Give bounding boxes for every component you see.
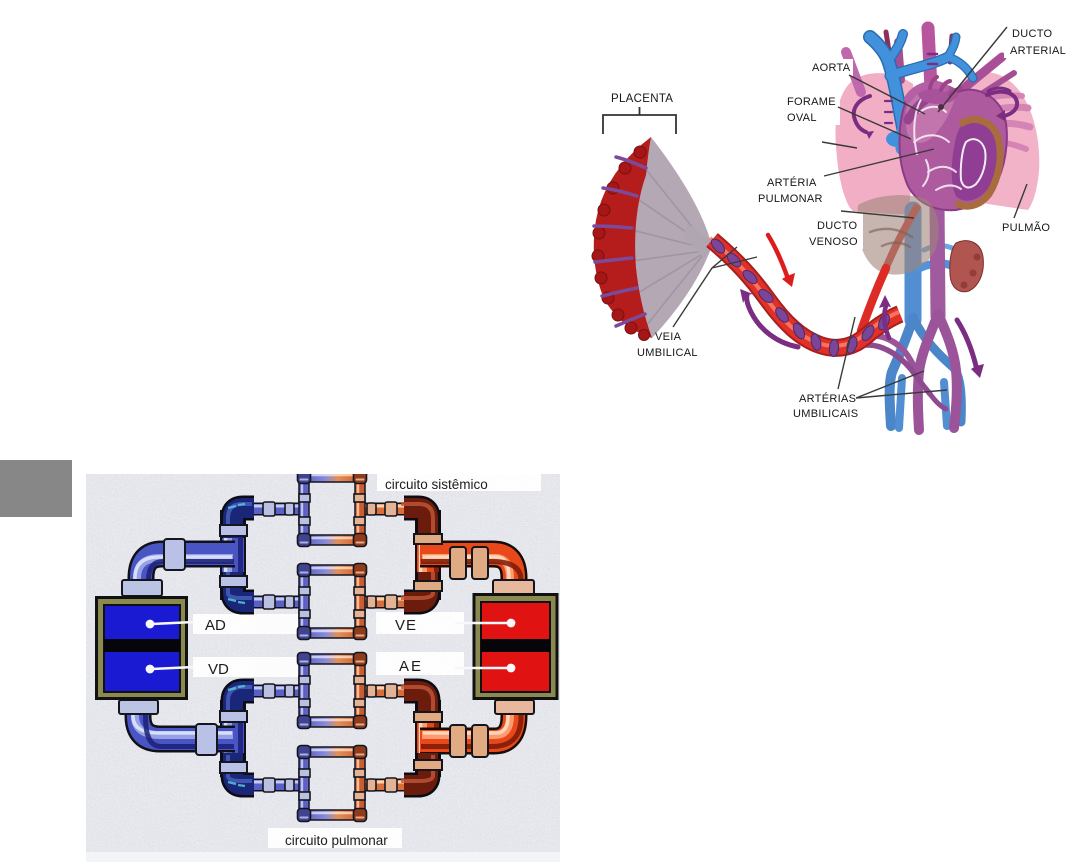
svg-text:VEIA: VEIA — [655, 331, 682, 343]
svg-text:ARTERIAL: ARTERIAL — [1010, 45, 1066, 57]
svg-text:circuito pulmonar: circuito pulmonar — [285, 833, 388, 848]
svg-text:OVAL: OVAL — [787, 112, 817, 124]
svg-text:ARTÉRIA: ARTÉRIA — [767, 176, 817, 189]
svg-text:ARTÉRIAS: ARTÉRIAS — [799, 392, 856, 405]
svg-text:AORTA: AORTA — [812, 62, 851, 74]
svg-text:circuito sistêmico: circuito sistêmico — [385, 477, 488, 492]
svg-text:DUCTO: DUCTO — [1012, 28, 1053, 40]
svg-text:UMBILICAL: UMBILICAL — [637, 347, 698, 359]
svg-text:VE: VE — [395, 617, 417, 634]
svg-text:DUCTO: DUCTO — [817, 220, 858, 232]
svg-text:VENOSO: VENOSO — [809, 236, 858, 248]
svg-text:AE: AE — [399, 658, 423, 675]
svg-text:PULMONAR: PULMONAR — [758, 193, 823, 205]
svg-text:PULMÃO: PULMÃO — [1002, 221, 1050, 234]
svg-text:PLACENTA: PLACENTA — [611, 93, 673, 105]
svg-text:FORAME: FORAME — [787, 96, 836, 108]
svg-text:UMBILICAIS: UMBILICAIS — [793, 408, 858, 420]
svg-text:AD: AD — [205, 617, 226, 634]
svg-text:VD: VD — [208, 661, 229, 678]
